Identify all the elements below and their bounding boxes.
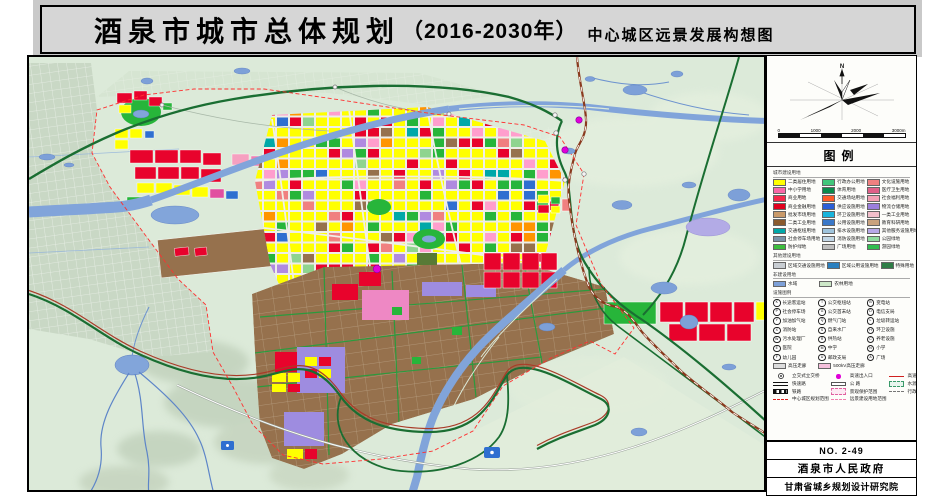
legend-item-label: 商业用地 bbox=[788, 195, 806, 201]
legend-facility-item: F幼儿园 bbox=[773, 354, 816, 362]
legend-line-item: 高速公路 bbox=[889, 373, 917, 379]
legend-item-label: 物流仓储用地 bbox=[882, 204, 910, 210]
legend-item-label: 中心城区规划范围 bbox=[792, 396, 829, 402]
legend-item-label: 教育科研用地 bbox=[882, 220, 910, 226]
page-subtitle: 中心城区远景发展构想图 bbox=[587, 24, 774, 45]
legend-facility-item: W污水处理厂 bbox=[773, 336, 816, 344]
legend-item-label: 防护绿地 bbox=[788, 244, 806, 250]
facility-symbol-icon: G bbox=[818, 308, 826, 316]
legend-color-swatch bbox=[818, 363, 831, 370]
legend-facility-item: A广场 bbox=[867, 354, 910, 362]
road-line-icon bbox=[831, 381, 846, 387]
legend-section-landuse-header: 城市建设用地 bbox=[773, 170, 910, 178]
interchange-dot bbox=[562, 147, 568, 153]
legend-item-label: 行政办公用地 bbox=[837, 179, 865, 185]
interchange-dot bbox=[576, 117, 582, 123]
legend-item-label: 游园绿地 bbox=[882, 244, 900, 250]
legend-item: 物流仓储用地 bbox=[867, 203, 917, 210]
legend-item: 消防设施用地 bbox=[822, 236, 865, 243]
legend-facility-item: N小学 bbox=[867, 345, 910, 353]
facility-symbol-icon: P bbox=[773, 308, 781, 316]
legend-color-swatch bbox=[773, 281, 786, 288]
legend-item-label: 高速公路 bbox=[908, 373, 917, 379]
legend-item: 公园绿地 bbox=[867, 236, 917, 243]
rail-line-icon bbox=[773, 389, 788, 395]
legend-color-swatch bbox=[822, 179, 835, 186]
legend-item-label: 供应设施用地 bbox=[837, 204, 865, 210]
legend-line-item: 立交式立交桥 bbox=[773, 373, 829, 379]
legend-item: 排水设施用地 bbox=[822, 228, 865, 235]
legend-item: 广场用地 bbox=[822, 244, 865, 251]
legend-facility-item: S自来水厂 bbox=[818, 327, 864, 335]
scenic-line-icon bbox=[831, 389, 846, 395]
facility-symbol-icon: D bbox=[867, 308, 875, 316]
legend-facility-item: P社会停车场 bbox=[773, 308, 816, 316]
scale-tick: 2000 bbox=[851, 128, 861, 133]
legend-item-label: 立交式立交桥 bbox=[792, 373, 820, 379]
facility-symbol-icon: Y bbox=[773, 317, 781, 325]
legend-facility-item: M中学 bbox=[818, 345, 864, 353]
legend-item-label: 长途客运站 bbox=[783, 300, 806, 306]
legend-color-swatch bbox=[867, 228, 880, 235]
svg-text:N: N bbox=[839, 64, 843, 70]
legend-item: 体育用地 bbox=[822, 187, 865, 194]
legend-facility-item: K长途客运站 bbox=[773, 299, 816, 307]
legend-color-swatch bbox=[822, 236, 835, 243]
legend-color-swatch bbox=[773, 228, 786, 235]
cityline-line-icon bbox=[773, 396, 788, 402]
legend-color-swatch bbox=[822, 228, 835, 235]
legend-item-label: 快速路 bbox=[792, 381, 806, 387]
legend-item-label: 医疗卫生用地 bbox=[882, 187, 910, 193]
drawing-number: NO. 2-49 bbox=[766, 441, 917, 460]
title-bar: 酒泉市城市总体规划 （2016-2030年） 中心城区远景发展构想图 bbox=[40, 5, 916, 54]
legend-item: 区域交通设施用地 bbox=[773, 262, 825, 269]
institute-label: 甘肃省城乡规划设计研究院 bbox=[766, 477, 917, 496]
legend-item-label: 广场用地 bbox=[837, 244, 855, 250]
legend-line-item: 快速路 bbox=[773, 381, 829, 387]
facility-symbol-icon: C bbox=[867, 336, 875, 344]
map-canvas bbox=[27, 55, 766, 492]
legend-color-swatch bbox=[867, 203, 880, 210]
legend-item-label: 特殊用地 bbox=[896, 263, 914, 269]
legend-color-swatch bbox=[773, 203, 786, 210]
page-title: 酒泉市城市总体规划 bbox=[94, 10, 400, 50]
legend-item-label: 交通场站用地 bbox=[837, 195, 865, 201]
legend-noncon-grid: 水域农林用地 bbox=[773, 281, 910, 288]
legend-item-label: 排水设施用地 bbox=[837, 228, 865, 234]
legend-color-swatch bbox=[773, 219, 786, 226]
legend-color-swatch bbox=[867, 244, 880, 251]
legend-line-item: 景观保护范围 bbox=[831, 389, 887, 395]
legend-color-swatch bbox=[827, 262, 840, 269]
legend-facility-item: Y加油加气站 bbox=[773, 317, 816, 325]
legend-item: 特殊用地 bbox=[881, 262, 914, 269]
facility-symbol-icon: T bbox=[818, 299, 826, 307]
legend-facility-item: U邮政支局 bbox=[818, 354, 864, 362]
legend-line-item: 中心城区规划范围 bbox=[773, 396, 829, 402]
legend-item: 文化设施用地 bbox=[867, 179, 917, 186]
legend-item: 二类居住用地 bbox=[773, 179, 820, 186]
legend-color-swatch bbox=[881, 262, 894, 269]
legend-item: 公用设施用地 bbox=[822, 219, 865, 226]
legend-item-label: 消防站 bbox=[783, 327, 797, 333]
legend-item-label: 养老设施 bbox=[876, 336, 894, 342]
facility-symbol-icon: B bbox=[867, 299, 875, 307]
legend-color-swatch bbox=[773, 236, 786, 243]
legend-item: 水域 bbox=[773, 281, 817, 288]
legend-item-label: 远景建设用地范围 bbox=[850, 396, 887, 402]
legend-item-label: 文化设施用地 bbox=[882, 179, 910, 185]
legend-item-label: 商业金融用地 bbox=[788, 204, 816, 210]
legend-line-item: 公 路 bbox=[831, 381, 887, 387]
compass-rose-icon: N bbox=[780, 60, 904, 122]
facility-symbol-icon: L bbox=[867, 317, 875, 325]
legend-item-label: 广场 bbox=[876, 355, 885, 361]
admin-line-icon bbox=[889, 389, 904, 395]
legend-item-label: 其他服务设施用地 bbox=[882, 228, 917, 234]
legend-color-swatch bbox=[822, 211, 835, 218]
legend-line-item: 行政区划界线 bbox=[889, 389, 917, 395]
interchange-dot bbox=[373, 265, 381, 273]
legend-color-swatch bbox=[773, 363, 786, 370]
legend-item-label: 水域 bbox=[788, 281, 797, 287]
legend-item: 游园绿地 bbox=[867, 244, 917, 251]
legend-color-swatch bbox=[773, 195, 786, 202]
facility-symbol-icon: W bbox=[773, 336, 781, 344]
legend-facility-grid: K长途客运站T公交枢纽站B变电站P社会停车场G公交首末站D电信支局Y加油加气站Q… bbox=[773, 299, 910, 369]
compass: N bbox=[773, 60, 910, 127]
legend-item-label: 社会福利用地 bbox=[882, 195, 910, 201]
legend-item-label: 高压走廊 bbox=[788, 363, 806, 369]
legend-item-label: 二类居住用地 bbox=[788, 179, 816, 185]
legend-color-swatch bbox=[773, 187, 786, 194]
scale-tick: 0 bbox=[778, 128, 781, 133]
legend-title: 图例 bbox=[773, 147, 910, 164]
legend-item-label: 中小学用地 bbox=[788, 187, 811, 193]
legend-color-swatch bbox=[867, 236, 880, 243]
legend-line-item: 铁路 bbox=[773, 389, 829, 395]
legend-section-noncon-header: 非建设用地 bbox=[773, 272, 910, 280]
legend-color-swatch bbox=[822, 187, 835, 194]
legend-item-label: 公交枢纽站 bbox=[828, 300, 851, 306]
futureline-line-icon bbox=[831, 396, 846, 402]
legend-item-label: 消防设施用地 bbox=[837, 236, 865, 242]
legend-item: 其他服务设施用地 bbox=[867, 228, 917, 235]
legend-color-swatch bbox=[819, 281, 832, 288]
legend-item: 一类工业用地 bbox=[867, 211, 917, 218]
legend-item-label: 一类工业用地 bbox=[882, 212, 910, 218]
legend-item: 社会停车场用地 bbox=[773, 236, 820, 243]
legend-line-item: 高速出入口 bbox=[831, 373, 887, 379]
legend-item: 行政办公用地 bbox=[822, 179, 865, 186]
scale-tick: 1000 bbox=[811, 128, 821, 133]
legend-item-label: 小学 bbox=[876, 345, 885, 351]
legend-color-swatch bbox=[867, 179, 880, 186]
facility-symbol-icon: R bbox=[818, 336, 826, 344]
legend-item-label: 二类工业用地 bbox=[788, 220, 816, 226]
legend-item-label: 自来水厂 bbox=[828, 327, 846, 333]
legend-facility-item: C养老设施 bbox=[867, 336, 910, 344]
legend-item: 防护绿地 bbox=[773, 244, 820, 251]
legend-color-swatch bbox=[822, 244, 835, 251]
legend-item: 二类工业用地 bbox=[773, 219, 820, 226]
legend-item-label: 500kV高压走廊 bbox=[833, 363, 864, 369]
facility-symbol-icon: X bbox=[773, 327, 781, 335]
scale-tick: 3000m bbox=[892, 128, 906, 133]
waterprot-line-icon bbox=[889, 381, 904, 387]
legend-item: 农林用地 bbox=[819, 281, 863, 288]
legend-item-label: 交通枢纽用地 bbox=[788, 228, 816, 234]
legend-facility-item: R供热站 bbox=[818, 336, 864, 344]
facility-symbol-icon: H bbox=[867, 327, 875, 335]
legend-color-swatch bbox=[867, 187, 880, 194]
legend-facility-item bbox=[867, 363, 910, 370]
facility-symbol-icon: Q bbox=[818, 317, 826, 325]
facility-symbol-icon: U bbox=[818, 354, 826, 362]
legend-item: 区域公用设施用地 bbox=[827, 262, 879, 269]
legend-item-label: 水源地一级保护区 bbox=[908, 381, 917, 387]
legend-item-label: 行政区划界线 bbox=[908, 389, 917, 395]
legend-item-label: 环卫设施用地 bbox=[837, 212, 865, 218]
legend-item-label: 体育用地 bbox=[837, 187, 855, 193]
legend-item: 中小学用地 bbox=[773, 187, 820, 194]
legend-item-label: 区域公用设施用地 bbox=[842, 263, 879, 269]
legend-item: 医疗卫生用地 bbox=[867, 187, 917, 194]
legend-item: 交通枢纽用地 bbox=[773, 228, 820, 235]
legend-item-label: 污水处理厂 bbox=[783, 336, 806, 342]
legend-item-label: 批发市场用地 bbox=[788, 212, 816, 218]
legend-facility-item: 高压走廊 bbox=[773, 363, 816, 370]
legend-item-label: 供热站 bbox=[828, 336, 842, 342]
legend-item-label: 中学 bbox=[828, 345, 837, 351]
facility-symbol-icon: K bbox=[773, 299, 781, 307]
legend-item-label: 公 路 bbox=[850, 381, 860, 387]
legend-item-label: 燃气门站 bbox=[828, 318, 846, 324]
legend-facility-item: E医院 bbox=[773, 345, 816, 353]
planning-map bbox=[29, 57, 766, 492]
legend-item-label: 垃圾转运站 bbox=[876, 318, 899, 324]
legend-lines-grid: 立交式立交桥高速出入口高速公路快速路公 路水源地一级保护区铁路景观保护范围行政区… bbox=[773, 373, 910, 402]
legend-facility-item: X消防站 bbox=[773, 327, 816, 335]
legend-item-label: 电信支局 bbox=[876, 309, 894, 315]
legend-item-label: 环卫设施 bbox=[876, 327, 894, 333]
facility-symbol-icon: S bbox=[818, 327, 826, 335]
legend-color-swatch bbox=[822, 219, 835, 226]
legend-item: 交通场站用地 bbox=[822, 195, 865, 202]
legend-item: 商业金融用地 bbox=[773, 203, 820, 210]
facility-symbol-icon: N bbox=[867, 345, 875, 353]
legend-line-item: 远景建设用地范围 bbox=[831, 396, 887, 402]
scale-bar: 0100020003000m bbox=[778, 128, 906, 138]
legend-item: 供应设施用地 bbox=[822, 203, 865, 210]
scale-bar-strip bbox=[778, 133, 906, 138]
legend-item-label: 景观保护范围 bbox=[850, 389, 878, 395]
legend-item-label: 社会停车场用地 bbox=[788, 236, 820, 242]
legend-landuse-grid: 二类居住用地行政办公用地文化设施用地中小学用地体育用地医疗卫生用地商业用地交通场… bbox=[773, 179, 910, 250]
legend-other-grid: 区域交通设施用地区域公用设施用地特殊用地 bbox=[773, 262, 910, 269]
legend-item-label: 高速出入口 bbox=[850, 373, 873, 379]
exit-line-icon bbox=[831, 373, 846, 379]
legend-item-label: 公用设施用地 bbox=[837, 220, 865, 226]
legend-item: 环卫设施用地 bbox=[822, 211, 865, 218]
legend-facility-item: 500kV高压走廊 bbox=[818, 363, 864, 370]
legend-item: 商业用地 bbox=[773, 195, 820, 202]
legend-item-label: 区域交通设施用地 bbox=[788, 263, 825, 269]
facility-symbol-icon: M bbox=[818, 345, 826, 353]
legend-facility-item: G公交首末站 bbox=[818, 308, 864, 316]
legend-section-facility-header: 设施图例 bbox=[773, 290, 910, 298]
legend-color-swatch bbox=[867, 219, 880, 226]
legend-facility-item: B变电站 bbox=[867, 299, 910, 307]
facility-symbol-icon: E bbox=[773, 345, 781, 353]
legend-item-label: 幼儿园 bbox=[783, 355, 797, 361]
legend-color-swatch bbox=[867, 195, 880, 202]
legend-item: 社会福利用地 bbox=[867, 195, 917, 202]
legend-item-label: 公园绿地 bbox=[882, 236, 900, 242]
legend-item-label: 公交首末站 bbox=[828, 309, 851, 315]
legend-facility-item: H环卫设施 bbox=[867, 327, 910, 335]
arterial-line-icon bbox=[773, 381, 788, 387]
facility-symbol-icon: F bbox=[773, 354, 781, 362]
legend-color-swatch bbox=[822, 195, 835, 202]
legend-section-other-header: 其他建设用地 bbox=[773, 253, 910, 261]
page-title-years: （2016-2030年） bbox=[402, 15, 577, 45]
legend-item-label: 农林用地 bbox=[834, 281, 852, 287]
legend-color-swatch bbox=[822, 203, 835, 210]
legend-item-label: 变电站 bbox=[876, 300, 890, 306]
government-label: 酒泉市人民政府 bbox=[766, 459, 917, 478]
legend-item-label: 加油加气站 bbox=[783, 318, 806, 324]
legend-color-swatch bbox=[773, 262, 786, 269]
legend-panel: N 0100020003000m 图例 城市建设用地 二类居住用地行政办公用地文… bbox=[766, 55, 917, 441]
legend-facility-item: L垃圾转运站 bbox=[867, 317, 910, 325]
legend-color-swatch bbox=[773, 179, 786, 186]
legend-color-swatch bbox=[867, 211, 880, 218]
expressway-line-icon bbox=[889, 373, 904, 379]
legend-facility-item: D电信支局 bbox=[867, 308, 910, 316]
legend-item: 教育科研用地 bbox=[867, 219, 917, 226]
legend-color-swatch bbox=[773, 244, 786, 251]
legend-item-label: 医院 bbox=[783, 345, 792, 351]
interchange-line-icon bbox=[773, 373, 788, 379]
legend-facility-item: T公交枢纽站 bbox=[818, 299, 864, 307]
legend-facility-item: Q燃气门站 bbox=[818, 317, 864, 325]
facility-symbol-icon: A bbox=[867, 354, 875, 362]
legend-item-label: 铁路 bbox=[792, 389, 801, 395]
legend-line-item: 水源地一级保护区 bbox=[889, 381, 917, 387]
legend-item-label: 邮政支局 bbox=[828, 355, 846, 361]
legend-color-swatch bbox=[773, 211, 786, 218]
legend-item: 批发市场用地 bbox=[773, 211, 820, 218]
legend-item-label: 社会停车场 bbox=[783, 309, 806, 315]
